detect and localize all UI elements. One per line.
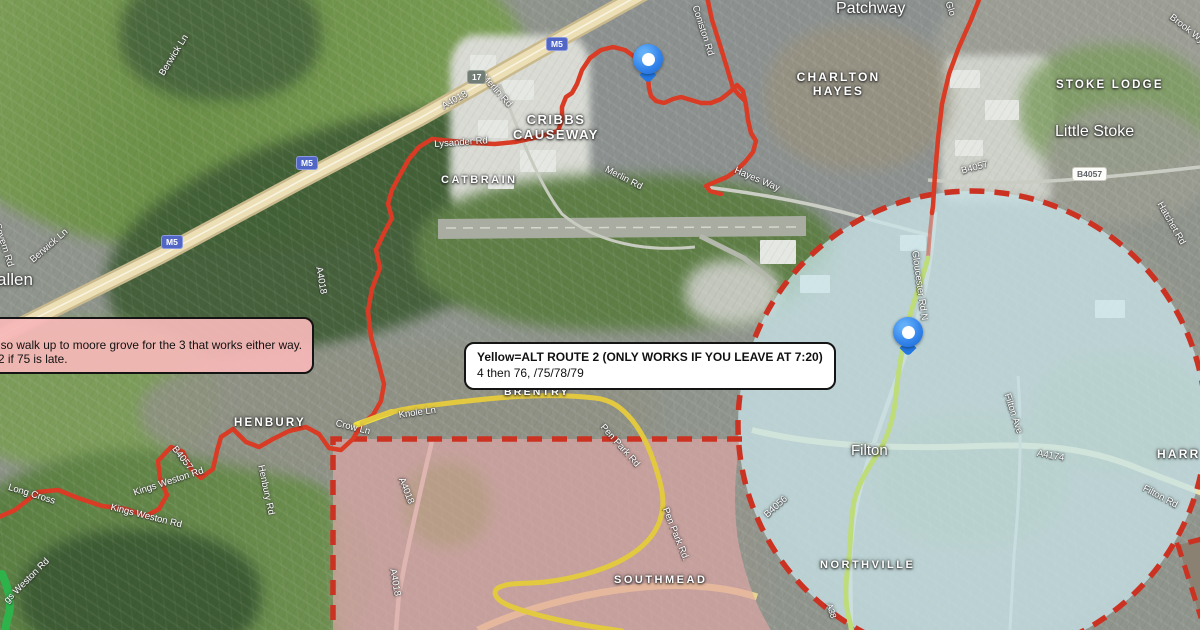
pink-note-line2: 2 if 75 is late.: [0, 352, 302, 366]
zones-layer: [333, 191, 1200, 630]
place-label-henbury: HENBURY: [234, 417, 306, 429]
place-label-little-stoke: Little Stoke: [1055, 123, 1134, 141]
pink-note-line1: lso walk up to moore grove for the 3 tha…: [0, 338, 302, 352]
place-label-charlton-hayes: CHARLTON HAYES: [776, 70, 901, 98]
pink-note-tooltip[interactable]: lso walk up to moore grove for the 3 tha…: [0, 317, 314, 374]
yellow-route-tooltip[interactable]: Yellow=ALT ROUTE 2 (ONLY WORKS IF YOU LE…: [464, 342, 836, 390]
map-pin-cribbs[interactable]: [633, 44, 663, 86]
yellow-route-title: Yellow=ALT ROUTE 2 (ONLY WORKS IF YOU LE…: [477, 349, 823, 365]
satellite-map-canvas[interactable]: Patchway CHARLTON HAYES STOKE LODGE Litt…: [0, 0, 1200, 630]
pink-zone-fill[interactable]: [333, 439, 771, 630]
yellow-route-subtitle: 4 then 76, /75/78/79: [477, 365, 823, 381]
place-label-southmead: SOUTHMEAD: [614, 574, 707, 586]
taxiway: [700, 236, 776, 284]
m5-shield: M5: [296, 156, 318, 170]
map-overlay-svg: [0, 0, 1200, 630]
junction-17-badge: 17: [467, 70, 486, 84]
blue-circle-zone-fill[interactable]: [738, 191, 1200, 630]
place-label-patchway: Patchway: [836, 0, 905, 18]
place-label-harry-stoke: HARR: [1157, 447, 1200, 461]
pin-dot: [642, 53, 655, 66]
place-label-northville: NORTHVILLE: [820, 559, 915, 571]
place-label-stoke-lodge: STOKE LODGE: [1056, 79, 1164, 91]
map-pin-filton[interactable]: [893, 317, 923, 359]
m5-shield: M5: [161, 235, 183, 249]
pin-dot: [902, 326, 915, 339]
place-label-hallen: allen: [0, 270, 33, 290]
m5-shield: M5: [546, 37, 568, 51]
place-label-filton: Filton: [851, 442, 888, 459]
b4057-badge: B4057: [1072, 167, 1107, 181]
place-label-cribbs-causeway: CRIBBS CAUSEWAY: [502, 112, 610, 142]
place-label-catbrain: CATBRAIN: [441, 174, 518, 186]
